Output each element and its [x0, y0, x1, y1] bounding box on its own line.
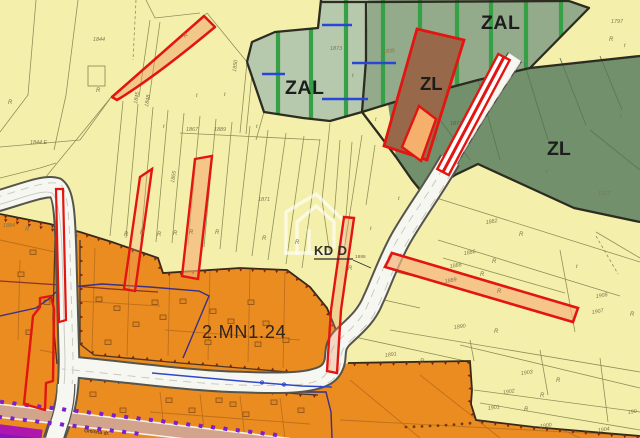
svg-text:R: R: [348, 266, 353, 272]
svg-text:R: R: [494, 329, 499, 335]
svg-text:R: R: [519, 232, 524, 238]
svg-text:1844: 1844: [93, 37, 105, 43]
svg-text:1877: 1877: [450, 121, 463, 127]
svg-text:KD D: KD D: [314, 243, 347, 258]
svg-text:1873: 1873: [330, 46, 342, 52]
svg-text:R: R: [173, 231, 178, 237]
svg-text:R: R: [492, 259, 497, 265]
svg-text:R: R: [497, 289, 502, 295]
svg-text:R: R: [609, 37, 614, 43]
svg-text:R: R: [630, 312, 635, 318]
svg-text:1884: 1884: [3, 223, 15, 229]
svg-text:R: R: [140, 230, 145, 236]
svg-text:1871: 1871: [258, 197, 270, 203]
svg-text:R: R: [480, 272, 485, 278]
svg-text:190: 190: [627, 409, 637, 416]
svg-text:R: R: [215, 230, 220, 236]
svg-text:1844 E: 1844 E: [30, 140, 47, 146]
svg-text:1886: 1886: [355, 254, 366, 260]
svg-text:R: R: [540, 393, 545, 399]
svg-text:R: R: [556, 378, 561, 384]
svg-text:R: R: [96, 88, 101, 94]
svg-text:1835: 1835: [383, 48, 396, 55]
svg-text:R: R: [189, 230, 194, 236]
svg-text:1797: 1797: [611, 19, 624, 25]
svg-text:R: R: [420, 359, 425, 365]
svg-text:1867: 1867: [186, 127, 199, 133]
svg-text:2.MN1.24: 2.MN1.24: [202, 322, 286, 342]
svg-text:1717: 1717: [598, 191, 611, 197]
svg-text:R: R: [524, 407, 529, 413]
svg-text:ZL: ZL: [420, 73, 443, 94]
svg-text:R: R: [124, 232, 129, 238]
svg-text:ZAL: ZAL: [481, 12, 520, 34]
svg-text:R: R: [157, 232, 162, 238]
svg-text:ZAL: ZAL: [285, 77, 324, 99]
svg-text:1889: 1889: [214, 127, 226, 133]
svg-text:R: R: [8, 100, 13, 106]
svg-text:R: R: [262, 236, 267, 242]
svg-text:R: R: [25, 227, 30, 233]
svg-text:R: R: [295, 240, 300, 246]
svg-text:ZL: ZL: [547, 138, 571, 160]
